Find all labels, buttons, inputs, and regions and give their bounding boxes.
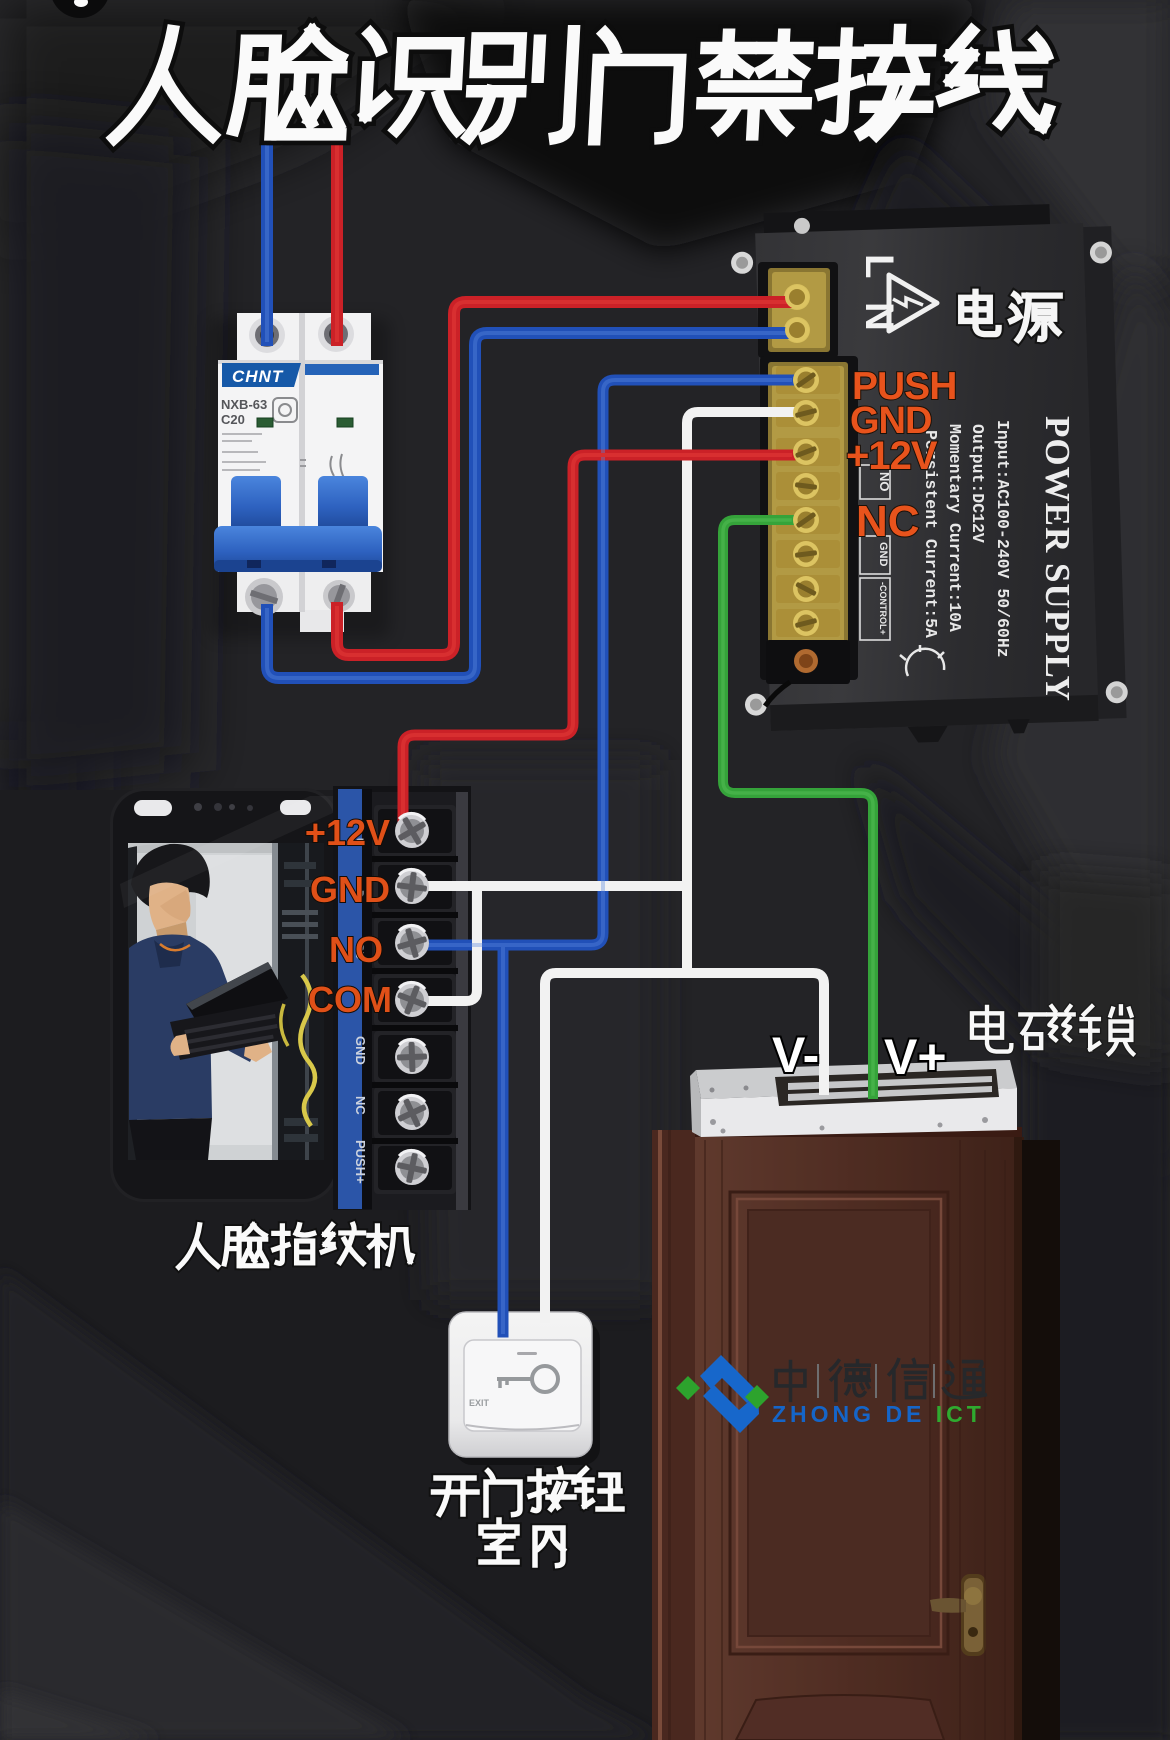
svg-text:GND: GND <box>310 869 390 910</box>
svg-text:NXB-63: NXB-63 <box>221 397 267 412</box>
svg-text:NC: NC <box>353 1096 368 1115</box>
svg-text:+12V: +12V <box>846 434 938 478</box>
svg-text:Momentary Current:10A: Momentary Current:10A <box>945 424 964 632</box>
svg-text:NO: NO <box>329 929 383 970</box>
svg-text:ZHONG DE ICT: ZHONG DE ICT <box>772 1401 985 1427</box>
svg-text:PUSH+: PUSH+ <box>353 1140 368 1184</box>
svg-text:C20: C20 <box>221 412 245 427</box>
svg-text:GND: GND <box>353 1036 368 1065</box>
svg-text:COM: COM <box>308 979 392 1020</box>
svg-text:Output:DC12V: Output:DC12V <box>968 424 987 543</box>
svg-text:CHNT: CHNT <box>232 367 284 386</box>
svg-text:Input:AC100-240V 50/60Hz: Input:AC100-240V 50/60Hz <box>993 420 1012 658</box>
svg-text:+12V: +12V <box>305 812 390 853</box>
svg-text:V-: V- <box>772 1027 819 1083</box>
svg-text:-CONTROL+: -CONTROL+ <box>878 582 888 635</box>
svg-text:V+: V+ <box>884 1029 947 1085</box>
svg-text:EXIT: EXIT <box>469 1398 490 1408</box>
svg-text:NC: NC <box>856 497 920 546</box>
svg-text:POWER SUPPLY: POWER SUPPLY <box>1038 416 1077 702</box>
svg-text:L: L <box>857 254 901 278</box>
